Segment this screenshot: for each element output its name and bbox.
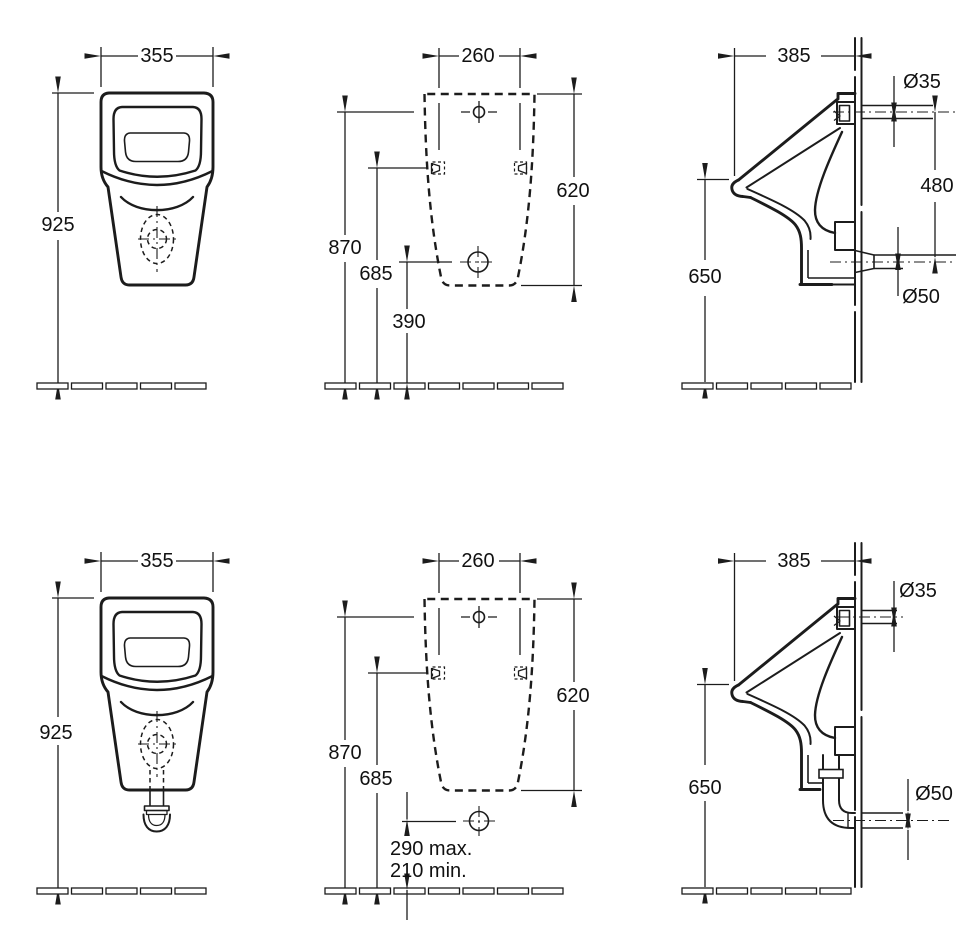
view-bottom-side: 385 Ø35 Ø50 650 bbox=[682, 543, 953, 894]
dim-outlet-height-label: 390 bbox=[392, 311, 425, 333]
dim-outlet-diameter-label: Ø50 bbox=[915, 783, 953, 805]
view-bottom-rear: 260 870 685 290 max. 210 min. 620 bbox=[325, 550, 590, 920]
dim-fixing-height-label: 685 bbox=[359, 768, 392, 790]
dim-outlet-height-max-label: 290 max. bbox=[390, 838, 472, 860]
view-top-rear: 260 870 685 390 620 bbox=[325, 45, 590, 389]
dim-rim-height-label: 650 bbox=[688, 266, 721, 288]
view-top-front: 355 925 bbox=[37, 45, 213, 389]
dim-depth-label: 385 bbox=[777, 550, 810, 572]
dim-width-label: 355 bbox=[140, 550, 173, 572]
dim-height-label: 925 bbox=[39, 722, 72, 744]
dim-fixing-height-label: 685 bbox=[359, 263, 392, 285]
urinal-dimension-drawing: 355 925 260 870 685 390 620 bbox=[0, 0, 980, 938]
dim-width-label: 355 bbox=[140, 45, 173, 67]
dim-hole-spacing-label: 260 bbox=[461, 550, 494, 572]
dim-rim-height-label: 650 bbox=[688, 777, 721, 799]
dim-outlet-height-min-label: 210 min. bbox=[390, 860, 467, 882]
dim-height-label: 925 bbox=[41, 214, 74, 236]
dim-inlet-diameter-label: Ø35 bbox=[903, 71, 941, 93]
dim-hole-spacing-label: 260 bbox=[461, 45, 494, 67]
dim-inlet-diameter-label: Ø35 bbox=[899, 580, 937, 602]
dim-outlet-diameter-label: Ø50 bbox=[902, 286, 940, 308]
dim-inlet-height-label: 870 bbox=[328, 237, 361, 259]
dim-inlet-to-outlet-label: 480 bbox=[920, 175, 953, 197]
view-top-side: 385 Ø35 480 Ø50 650 bbox=[682, 38, 956, 389]
dim-inlet-height-label: 870 bbox=[328, 742, 361, 764]
technical-drawing-sheet: 355 925 260 870 685 390 620 bbox=[0, 0, 980, 938]
dim-fixing-field-label: 620 bbox=[556, 685, 589, 707]
dim-fixing-field-label: 620 bbox=[556, 180, 589, 202]
dim-depth-label: 385 bbox=[777, 45, 810, 67]
view-bottom-front: 355 925 bbox=[37, 550, 213, 894]
